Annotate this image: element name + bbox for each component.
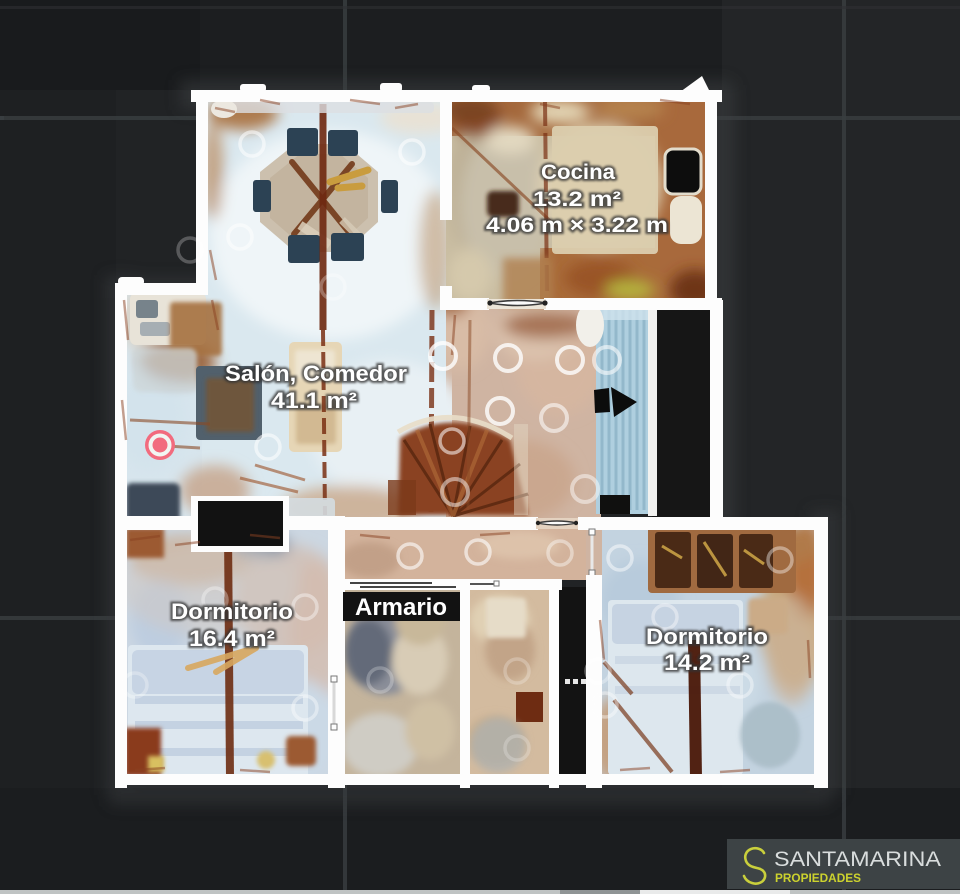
svg-text:SANTAMARINA: SANTAMARINA xyxy=(774,848,941,871)
svg-text:16.4 m²: 16.4 m² xyxy=(189,626,275,651)
svg-text:41.1 m²: 41.1 m² xyxy=(271,388,357,413)
svg-text:4.06 m × 3.22 m: 4.06 m × 3.22 m xyxy=(486,214,668,237)
svg-text:Salón, Comedor: Salón, Comedor xyxy=(225,361,407,386)
svg-text:Armario: Armario xyxy=(355,594,447,621)
svg-text:PROPIEDADES: PROPIEDADES xyxy=(775,873,861,885)
svg-text:Cocina: Cocina xyxy=(541,161,615,184)
svg-text:Dormitorio: Dormitorio xyxy=(646,624,768,649)
svg-text:Dormitorio: Dormitorio xyxy=(171,599,293,624)
svg-text:13.2 m²: 13.2 m² xyxy=(533,188,621,211)
svg-text:14.2 m²: 14.2 m² xyxy=(664,650,750,675)
